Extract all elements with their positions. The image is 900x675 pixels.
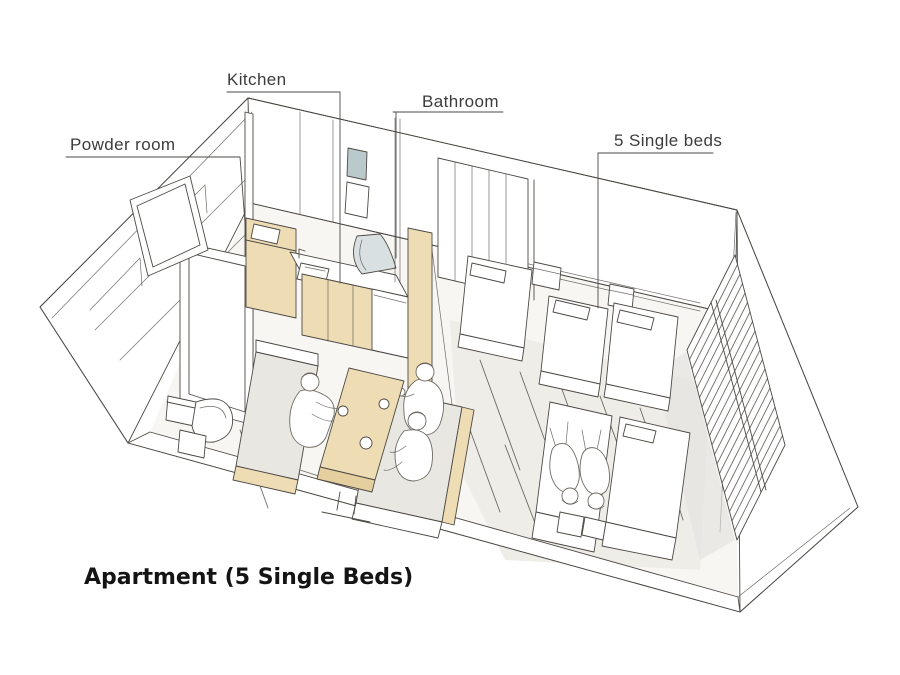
bed: [539, 296, 608, 397]
screenshot-root: Powder room Kitchen Bathroom 5 Single be…: [0, 0, 900, 675]
figure-caption: Apartment (5 Single Beds): [84, 565, 413, 590]
cup: [338, 406, 348, 416]
pillow: [557, 512, 584, 537]
bathroom-mirror: [345, 182, 369, 218]
vanity-cabinet: [246, 218, 296, 318]
label-powder-room: Powder room: [70, 135, 176, 155]
bed: [604, 303, 678, 411]
bed: [458, 256, 532, 361]
label-bathroom: Bathroom: [422, 92, 499, 112]
label-kitchen: Kitchen: [227, 70, 287, 90]
cup: [379, 399, 389, 409]
label-5-single-beds: 5 Single beds: [614, 131, 722, 151]
shower-glass: [347, 148, 367, 180]
cup: [360, 437, 372, 449]
door-frame: [180, 242, 253, 425]
